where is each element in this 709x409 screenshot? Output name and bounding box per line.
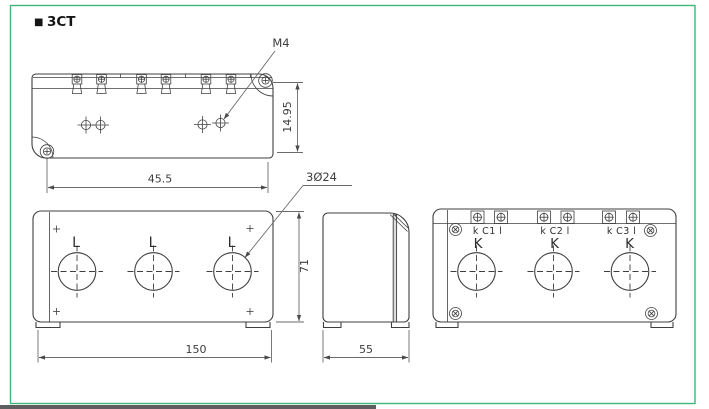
side-view-drawing: 55 — [323, 213, 409, 363]
side-foot-right — [392, 322, 410, 328]
k-label-1: K — [474, 236, 484, 252]
plus-mark-icon — [53, 226, 60, 233]
callout-leader-line — [245, 186, 303, 258]
screw-target-icon — [78, 117, 95, 134]
m4-callout-label: M4 — [272, 36, 289, 50]
top-view-body — [32, 74, 273, 158]
dim-value-14-95: 14.95 — [281, 101, 294, 133]
back-foot-right — [651, 322, 673, 328]
hole-label-L3: L — [228, 235, 236, 251]
horizontal-scrollbar-thumb[interactable] — [0, 405, 376, 409]
plus-mark-icon — [247, 225, 254, 232]
primary-hole-1 — [451, 246, 503, 298]
k-label-2: K — [550, 236, 560, 252]
screw-target-icon — [212, 115, 229, 132]
terminal-screw — [495, 211, 508, 224]
front-view-drawing: L L L 3Ø24 150 71 — [33, 170, 352, 363]
title-bullet-icon: ■ — [34, 17, 43, 28]
front-foot-left — [36, 322, 60, 328]
mounting-hole-bottom-left — [32, 137, 54, 158]
m4-screw-positions — [78, 115, 230, 134]
screw-target-icon — [194, 116, 211, 133]
page-title: 3CT — [47, 14, 76, 30]
terminal-screw — [538, 211, 551, 224]
hole-label-L1: L — [72, 235, 80, 251]
side-foot-left — [324, 322, 342, 328]
screw-icon — [645, 225, 657, 237]
mounting-hole-top-right — [251, 74, 273, 96]
primary-hole-2 — [128, 246, 180, 298]
dim-height-top-view: 14.95 — [273, 83, 303, 153]
technical-drawing: ■ 3CT — [0, 0, 709, 409]
dim-value-150: 150 — [186, 343, 207, 356]
back-foot-left — [436, 322, 458, 328]
page: ■ 3CT — [0, 0, 709, 409]
front-foot-right — [246, 322, 270, 328]
dim-value-71: 71 — [298, 259, 311, 273]
front-view-body — [33, 211, 273, 322]
terminal-screw — [603, 211, 616, 224]
screw-icon — [646, 308, 658, 320]
dim-width-side-view: 55 — [323, 330, 409, 363]
terminal-screw — [627, 211, 640, 224]
back-view-drawing: k C1 l k C2 l k C3 l K K K — [433, 209, 676, 328]
side-panel-rib — [393, 215, 396, 322]
dim-value-55: 55 — [359, 343, 373, 356]
terminal-screws-back — [471, 211, 640, 224]
primary-hole-2 — [528, 246, 580, 298]
m4-leader-line — [224, 51, 275, 119]
terminal-screw — [471, 211, 484, 224]
dim-height-front-view: 71 — [276, 212, 311, 323]
top-view-drawing: M4 14.95 45.5 — [32, 36, 303, 193]
hole-diameter-callout: 3Ø24 — [306, 170, 337, 184]
primary-hole-1 — [51, 246, 103, 298]
terminal-screw — [561, 211, 574, 224]
plus-mark-icon — [53, 308, 60, 315]
dim-width-top-view: 45.5 — [47, 159, 268, 194]
corner-chamfer-line — [390, 215, 408, 232]
screw-icon — [450, 308, 462, 320]
primary-hole-3 — [604, 246, 656, 298]
hole-label-L2: L — [149, 235, 157, 251]
screw-target-icon — [92, 117, 109, 134]
primary-hole-3 — [207, 246, 259, 298]
page-border — [11, 6, 696, 404]
dim-width-front-view: 150 — [38, 330, 272, 363]
screw-icon — [450, 224, 462, 236]
plus-mark-icon — [247, 308, 254, 315]
dim-value-45-5: 45.5 — [148, 173, 173, 186]
